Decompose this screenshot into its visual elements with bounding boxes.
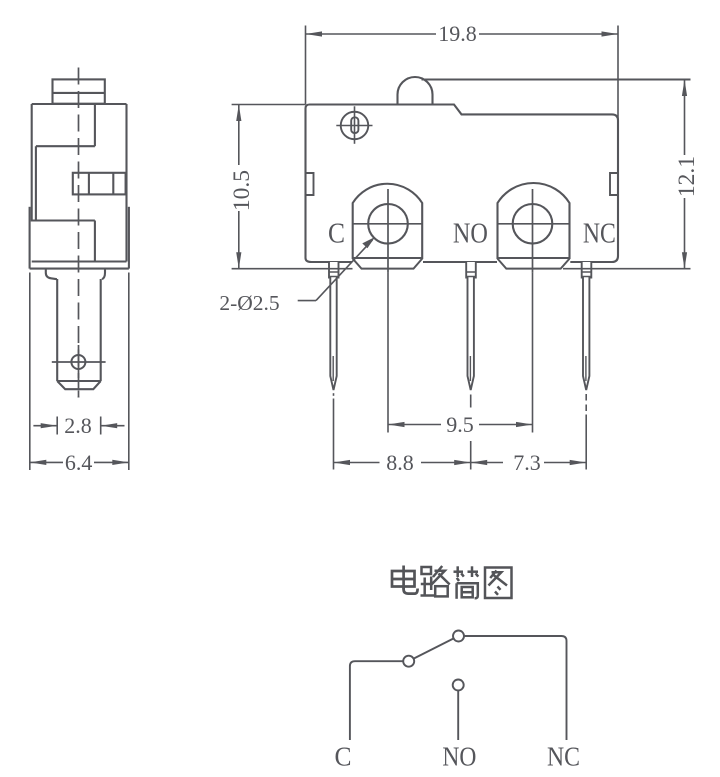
svg-text:NC: NC (583, 219, 616, 250)
svg-text:NO: NO (442, 742, 476, 772)
svg-text:NO: NO (453, 219, 488, 250)
svg-text:NC: NC (547, 742, 580, 772)
svg-text:C: C (335, 742, 352, 772)
svg-text:10.5: 10.5 (229, 170, 255, 211)
svg-text:7.3: 7.3 (513, 450, 541, 475)
svg-text:2-Ø2.5: 2-Ø2.5 (219, 291, 279, 315)
svg-text:C: C (328, 219, 345, 250)
svg-text:6.4: 6.4 (65, 450, 93, 475)
svg-text:19.8: 19.8 (438, 21, 477, 46)
svg-text:12.1: 12.1 (674, 156, 700, 197)
svg-text:9.5: 9.5 (446, 412, 474, 437)
svg-text:8.8: 8.8 (386, 450, 414, 475)
svg-text:2.8: 2.8 (64, 413, 92, 438)
